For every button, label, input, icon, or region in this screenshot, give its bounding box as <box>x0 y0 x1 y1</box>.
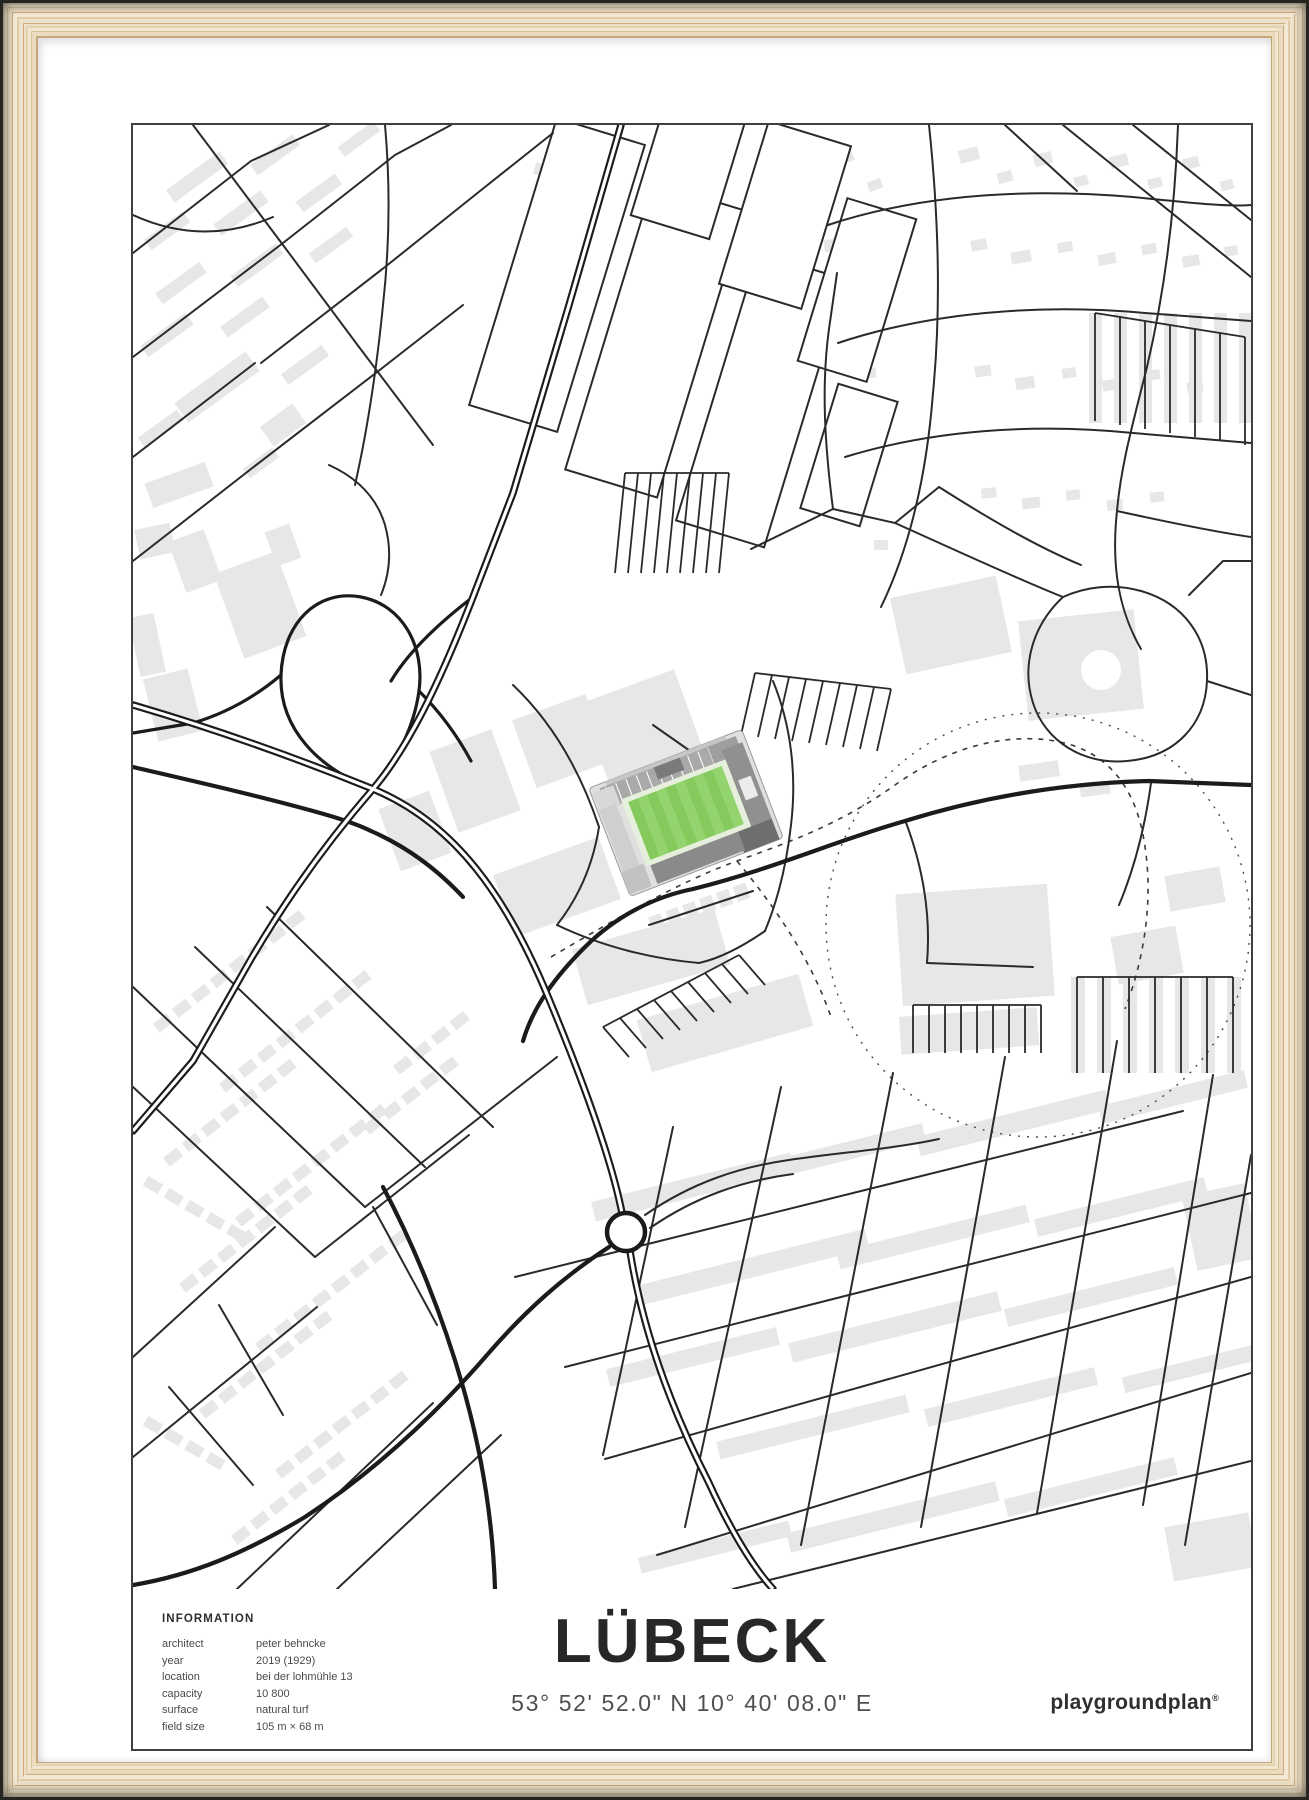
poster-mat: INFORMATION architect peter behncke year… <box>38 38 1271 1762</box>
frame-top <box>0 0 1309 38</box>
frame-left <box>0 0 38 1800</box>
roundabout <box>607 1213 645 1251</box>
info-row: field size 105 m × 68 m <box>162 1719 353 1736</box>
brand-name: playgroundplan <box>1050 1691 1212 1714</box>
poster-title: LÜBECK <box>133 1609 1251 1674</box>
framed-poster: INFORMATION architect peter behncke year… <box>0 0 1309 1800</box>
poster-footer: INFORMATION architect peter behncke year… <box>133 1589 1251 1749</box>
parcels-layer <box>469 125 916 547</box>
poster: INFORMATION architect peter behncke year… <box>131 123 1253 1751</box>
registered-mark: ® <box>1212 1693 1219 1703</box>
brand-logo: playgroundplan® <box>1050 1691 1219 1715</box>
frame-bottom <box>0 1762 1309 1800</box>
map-area <box>133 125 1251 1589</box>
stadium-location-map <box>133 125 1251 1589</box>
roundabout <box>607 1213 645 1251</box>
frame-right <box>1271 0 1309 1800</box>
